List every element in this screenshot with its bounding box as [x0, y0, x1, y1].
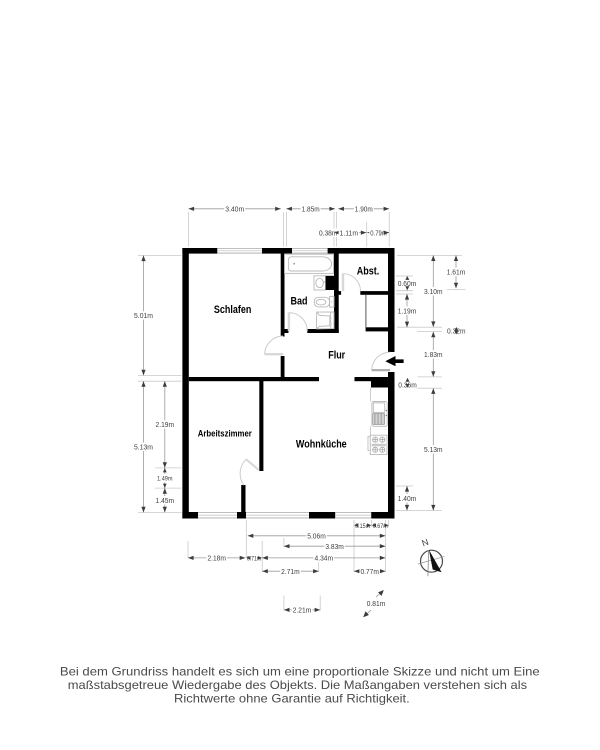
svg-text:1.49m: 1.49m — [157, 476, 173, 483]
svg-text:Flur: Flur — [328, 349, 345, 361]
svg-text:1.45m: 1.45m — [156, 496, 175, 505]
svg-text:1.19m: 1.19m — [398, 306, 417, 315]
svg-text:5.13m: 5.13m — [134, 443, 153, 452]
svg-text:2.71m: 2.71m — [281, 567, 300, 576]
svg-text:1.11m: 1.11m — [340, 228, 359, 237]
svg-text:0.77m: 0.77m — [360, 567, 379, 576]
svg-text:2.18m: 2.18m — [207, 554, 226, 563]
svg-text:4.34m: 4.34m — [315, 554, 334, 563]
svg-text:1.61m: 1.61m — [447, 268, 466, 277]
svg-text:1.40m: 1.40m — [398, 494, 417, 503]
svg-text:5.13m: 5.13m — [424, 445, 443, 454]
svg-text:2.19m: 2.19m — [156, 420, 175, 429]
svg-text:1.85m: 1.85m — [302, 205, 320, 214]
svg-text:Wohnküche: Wohnküche — [296, 439, 347, 451]
svg-text:Schlafen: Schlafen — [214, 304, 252, 316]
svg-text:5.01m: 5.01m — [134, 311, 153, 320]
svg-text:2.21m: 2.21m — [293, 606, 312, 615]
svg-text:0.81m: 0.81m — [367, 599, 386, 608]
svg-text:1.83m: 1.83m — [424, 350, 443, 359]
svg-text:1.90m: 1.90m — [355, 205, 373, 214]
svg-text:Abst.: Abst. — [357, 266, 380, 278]
svg-text:3.83m: 3.83m — [325, 542, 344, 551]
svg-text:3.10m: 3.10m — [424, 287, 443, 296]
svg-text:0.38m: 0.38m — [319, 228, 338, 237]
svg-text:Bei dem Grundriss handelt es s: Bei dem Grundriss handelt es sich um ein… — [60, 664, 540, 678]
svg-text:Richtwerte ohne Garantie auf R: Richtwerte ohne Garantie auf Richtigkeit… — [174, 691, 410, 705]
svg-text:5.06m: 5.06m — [307, 532, 326, 541]
svg-text:3.40m: 3.40m — [225, 205, 244, 214]
svg-text:Arbeitszimmer: Arbeitszimmer — [198, 428, 252, 438]
svg-text:maßstabsgetreue Wiedergabe des: maßstabsgetreue Wiedergabe des Objekts. … — [68, 678, 527, 692]
svg-text:Bad: Bad — [291, 296, 308, 308]
